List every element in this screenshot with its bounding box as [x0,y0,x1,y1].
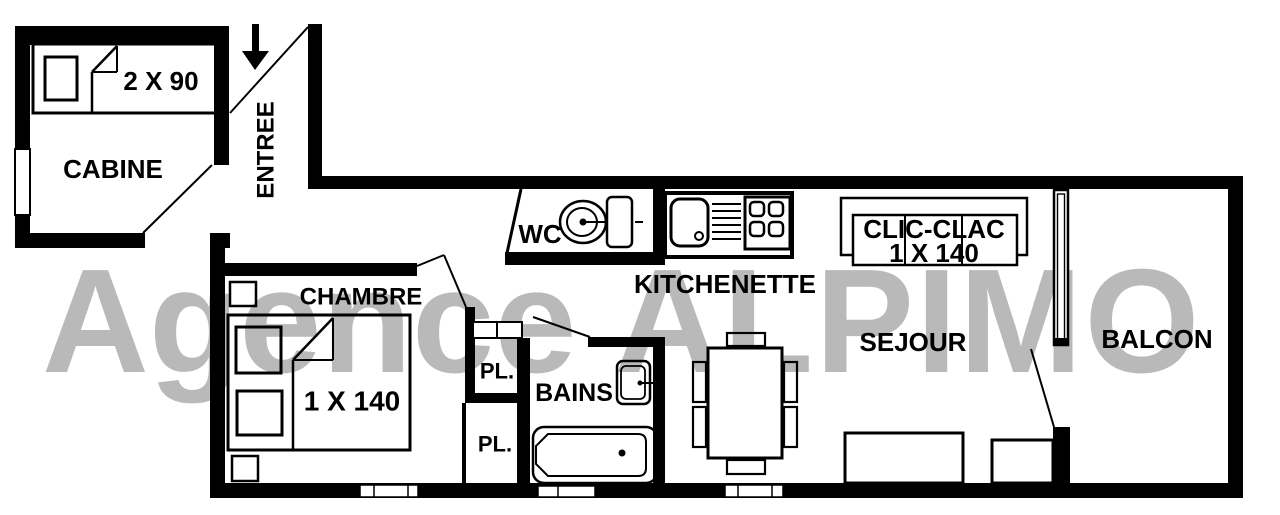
wall-main-top [308,176,1243,189]
sejour-balcon-window [1054,190,1068,345]
sejour-balcon-window-sill [1054,338,1068,345]
wall-bains-right [653,337,665,487]
bains-label: BAINS [535,379,613,407]
wc-room: WC [518,197,643,249]
clic-clac-label-line2: 1 X 140 [889,238,979,268]
chambre-label: CHAMBRE [300,284,423,311]
floorplan-drawing: Agence ALPIMO [0,0,1280,515]
kitchenette-label: KITCHENETTE [634,269,816,299]
sejour-cabinet [992,440,1053,483]
stove-burner [769,202,783,216]
floorplan-page: Agence ALPIMO [0,0,1280,515]
wall-chambre-top [225,263,417,276]
cabine-bed-label: 2 X 90 [123,66,198,96]
window-chambre [360,485,418,497]
chambre-nightstand-bottom [232,456,258,481]
cabine-bed-pillow [45,57,77,100]
window-cabine-left [15,149,30,215]
sejour-label: SEJOUR [860,327,967,357]
bathtub-drain [619,450,626,457]
wall-cabine-top [15,26,228,45]
entree-label: ENTREE [253,101,280,198]
bathtub [533,427,657,483]
wall-wc-bottom [505,252,665,265]
dining-table [708,348,782,458]
dining-chair-left-2 [693,407,706,447]
wall-cabine-left-upper [15,26,30,149]
entry-arrow-head [242,51,269,70]
entree-area: ENTREE [242,24,280,199]
sejour-sideboard [845,433,963,483]
dining-chair-bottom [727,460,765,474]
placard-lower-label: PL. [478,432,512,457]
bathtub-inner [536,434,646,476]
wall-cabine-bottom [15,233,145,248]
wall-balcon-right [1228,176,1243,498]
toilet-flush-dot [580,219,587,226]
kitchen-drainboard [712,204,741,239]
wall-placard-right [517,338,530,487]
window-bains [538,486,595,497]
toilet-tank [607,197,632,247]
stove-burner [769,222,783,236]
placard-upper-label: PL. [480,359,514,384]
cabine-bed-fold [92,46,117,72]
stove-burner [750,222,764,236]
door-entry [230,27,308,113]
wall-chambre-left [210,233,225,483]
wall-balcon-door-stub [1053,427,1070,487]
stove-burner [750,202,764,216]
chambre-bed-label: 1 X 140 [304,386,401,417]
entry-arrow-shaft [252,24,259,52]
window-sejour [725,485,783,497]
dining-chair-right-2 [784,407,797,447]
cabine-room: 2 X 90 CABINE [33,44,216,184]
wall-placard-stub [465,307,475,400]
wc-label: WC [518,219,562,249]
cabine-label: CABINE [63,154,163,184]
wall-placard-lower-left [462,403,466,483]
wall-entry-corridor-right [308,24,322,189]
balcon-label: BALCON [1101,324,1212,354]
